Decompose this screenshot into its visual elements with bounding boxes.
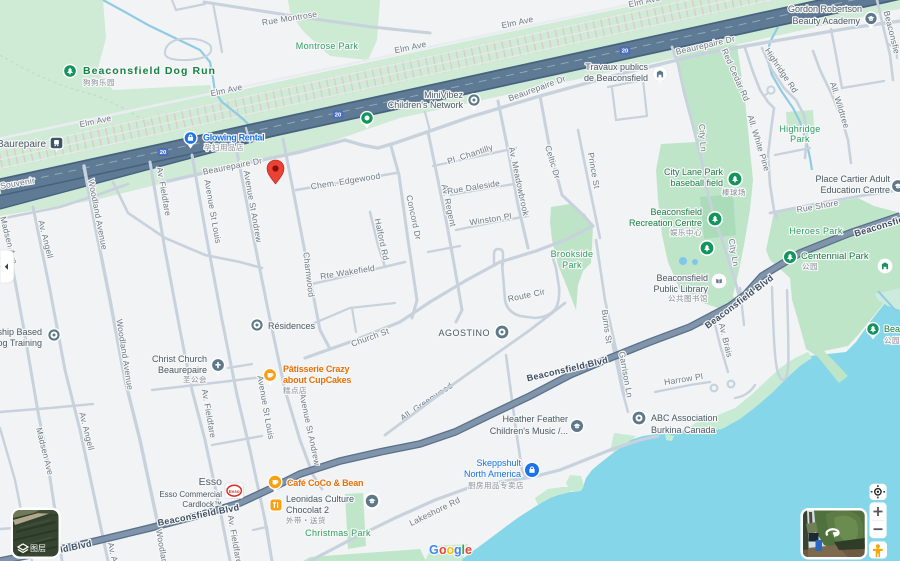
svg-text:Café CoCo & Bean: Café CoCo & Bean [287, 478, 363, 488]
svg-text:about CupCakes: about CupCakes [283, 375, 351, 385]
svg-text:Place Cartier Adult: Place Cartier Adult [815, 174, 890, 184]
svg-text:Park: Park [790, 134, 810, 144]
svg-text:棒球场: 棒球场 [722, 187, 746, 197]
svg-text:Highridge: Highridge [779, 124, 820, 134]
svg-text:Brookside: Brookside [551, 249, 594, 259]
svg-text:厨房用品专卖店: 厨房用品专卖店 [468, 480, 524, 490]
svg-text:MiniVibez: MiniVibez [424, 90, 463, 100]
svg-text:图层: 图层 [30, 544, 46, 553]
svg-text:20: 20 [160, 150, 166, 156]
svg-text:Glowing Rental: Glowing Rental [203, 133, 264, 143]
svg-text:baseball field: baseball field [670, 178, 723, 188]
svg-text:20: 20 [335, 113, 341, 119]
svg-text:Recreation Centre: Recreation Centre [629, 218, 702, 228]
svg-text:ship Based: ship Based [0, 327, 42, 337]
svg-text:Beaconsfield: Beaconsfield [656, 273, 708, 283]
svg-text:Leonidas Culture: Leonidas Culture [286, 494, 354, 504]
svg-text:20: 20 [622, 49, 628, 55]
svg-text:公园: 公园 [802, 262, 818, 271]
svg-text:og Training: og Training [0, 338, 42, 348]
svg-text:圣公会: 圣公会 [183, 374, 207, 384]
svg-text:Christ Church: Christ Church [152, 354, 207, 364]
svg-text:City Lane Park: City Lane Park [664, 167, 724, 177]
svg-text:Esso Commercial: Esso Commercial [159, 490, 222, 499]
svg-text:Centennial Park: Centennial Park [801, 251, 869, 262]
svg-text:Children's Network: Children's Network [388, 100, 464, 110]
svg-text:ABC Association: ABC Association [651, 413, 718, 423]
svg-text:Pâtisserie Crazy: Pâtisserie Crazy [283, 364, 350, 374]
svg-text:Heather Feather: Heather Feather [502, 414, 568, 424]
svg-text:Montrose Park: Montrose Park [296, 41, 359, 51]
svg-text:City Ln: City Ln [697, 124, 709, 153]
svg-text:Burkina Canada: Burkina Canada [651, 425, 716, 435]
svg-text:Children's Music /...: Children's Music /... [490, 426, 568, 436]
svg-text:Skeppshult: Skeppshult [476, 458, 521, 468]
svg-text:孕妇用品店: 孕妇用品店 [204, 142, 244, 152]
svg-text:Beaconsfield Dog Run: Beaconsfield Dog Run [83, 65, 216, 77]
svg-text:Esso: Esso [199, 476, 223, 488]
svg-text:G: G [429, 543, 438, 557]
svg-text:g: g [454, 543, 461, 557]
svg-text:外带・送货: 外带・送货 [286, 515, 326, 525]
svg-text:糕点店: 糕点店 [283, 385, 307, 395]
svg-text:娱乐中心: 娱乐中心 [670, 227, 702, 237]
svg-text:Travaux publics: Travaux publics [585, 62, 648, 72]
svg-text:de Beaconsfield: de Beaconsfield [584, 73, 648, 83]
svg-text:Beauty Academy: Beauty Academy [792, 16, 860, 26]
svg-text:Public Library: Public Library [653, 284, 708, 294]
svg-text:公共图书馆: 公共图书馆 [668, 293, 708, 303]
svg-text:Cardlock™: Cardlock™ [182, 500, 222, 509]
svg-text:公园: 公园 [884, 336, 900, 345]
svg-text:Esso: Esso [229, 489, 240, 494]
svg-text:Heroes Park: Heroes Park [789, 226, 843, 236]
svg-text:Gordon Robertson: Gordon Robertson [788, 4, 862, 14]
svg-text:Résidences: Résidences [268, 321, 316, 331]
svg-text:Bea: Bea [884, 324, 900, 334]
svg-text:Baurepaire: Baurepaire [0, 139, 46, 150]
svg-text:AGOSTINO: AGOSTINO [438, 328, 490, 338]
svg-text:Beaconsfield: Beaconsfield [650, 207, 702, 217]
svg-text:狗狗乐园: 狗狗乐园 [83, 77, 115, 87]
svg-text:Park: Park [562, 260, 582, 270]
svg-text:North America: North America [464, 469, 521, 479]
svg-text:Education Centre: Education Centre [820, 185, 890, 195]
svg-text:Chocolat 2: Chocolat 2 [286, 505, 329, 515]
svg-text:Christmas Park: Christmas Park [305, 528, 371, 538]
svg-text:e: e [465, 543, 472, 557]
svg-text:Beaurepaire: Beaurepaire [158, 365, 207, 375]
